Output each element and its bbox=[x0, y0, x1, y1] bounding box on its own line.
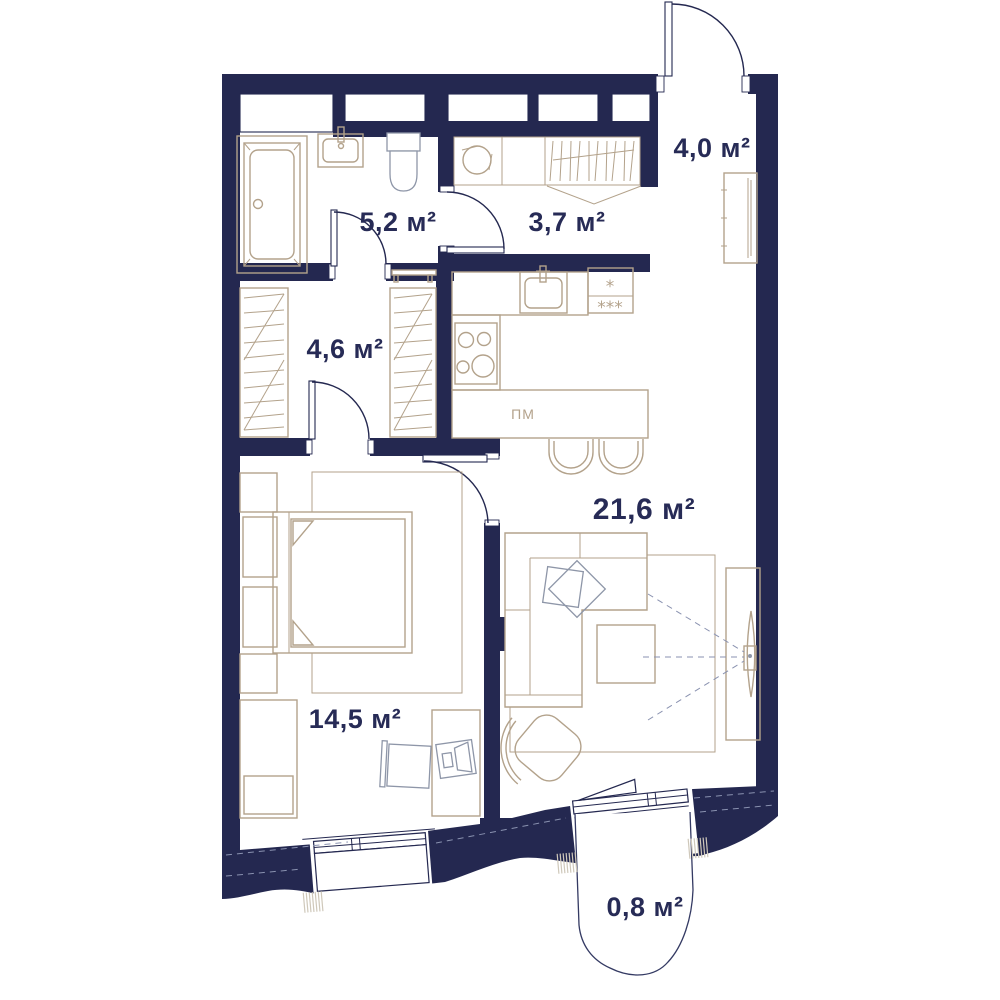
area-label-living-kitchen: 21,6 м² bbox=[593, 493, 695, 526]
tv-viewing-guides bbox=[643, 594, 752, 720]
fridge: * *** bbox=[588, 268, 633, 318]
dishwasher-label: ПМ bbox=[511, 406, 535, 422]
dresser bbox=[240, 654, 277, 693]
closet-right bbox=[390, 288, 436, 437]
bedroom-area bbox=[240, 472, 480, 818]
nightstand bbox=[243, 587, 277, 647]
toilet bbox=[387, 133, 420, 191]
fridge-star-bottom: *** bbox=[597, 298, 623, 318]
stove bbox=[455, 323, 497, 384]
bed bbox=[273, 512, 412, 653]
coffee-table bbox=[597, 625, 655, 683]
bedroom-door bbox=[423, 453, 499, 526]
area-label-balcony: 0,8 м² bbox=[607, 892, 684, 922]
area-label-wardrobe: 4,6 м² bbox=[307, 334, 384, 364]
bar-stool bbox=[549, 439, 593, 474]
hall-door bbox=[440, 186, 504, 253]
tv-console bbox=[726, 568, 760, 740]
kitchen-island: ПМ bbox=[452, 390, 648, 438]
fridge-star-top: * bbox=[606, 277, 615, 297]
kitchen-counter-left bbox=[452, 315, 500, 390]
hanging-clothes-icon bbox=[547, 141, 641, 204]
washing-machine-icon bbox=[462, 146, 492, 174]
desk-chair bbox=[380, 741, 431, 790]
bar-stool bbox=[599, 439, 643, 474]
closet-left bbox=[240, 288, 288, 437]
area-label-bedroom: 14,5 м² bbox=[309, 704, 402, 734]
kitchen-sink bbox=[520, 266, 567, 313]
area-label-bathroom: 5,2 м² bbox=[360, 207, 437, 237]
hall-fixtures bbox=[454, 137, 641, 204]
entry-door bbox=[656, 2, 750, 92]
sofa bbox=[505, 533, 647, 707]
tv-icon bbox=[747, 611, 755, 697]
nightstand bbox=[243, 517, 277, 577]
entry-console bbox=[721, 173, 757, 263]
area-label-hall: 3,7 м² bbox=[529, 207, 606, 237]
area-label-entry-hall: 4,0 м² bbox=[674, 133, 751, 163]
bedroom-wardrobe bbox=[240, 700, 297, 818]
floor-plan-page: * *** ПМ bbox=[0, 0, 1000, 1000]
laptop-icon bbox=[436, 740, 476, 779]
bathtub bbox=[237, 136, 307, 273]
bedroom-window bbox=[302, 819, 441, 909]
wardrobe-door bbox=[306, 381, 374, 454]
floor-plan: * *** ПМ bbox=[0, 0, 1000, 1000]
dresser bbox=[240, 473, 277, 512]
living-room bbox=[482, 533, 760, 802]
